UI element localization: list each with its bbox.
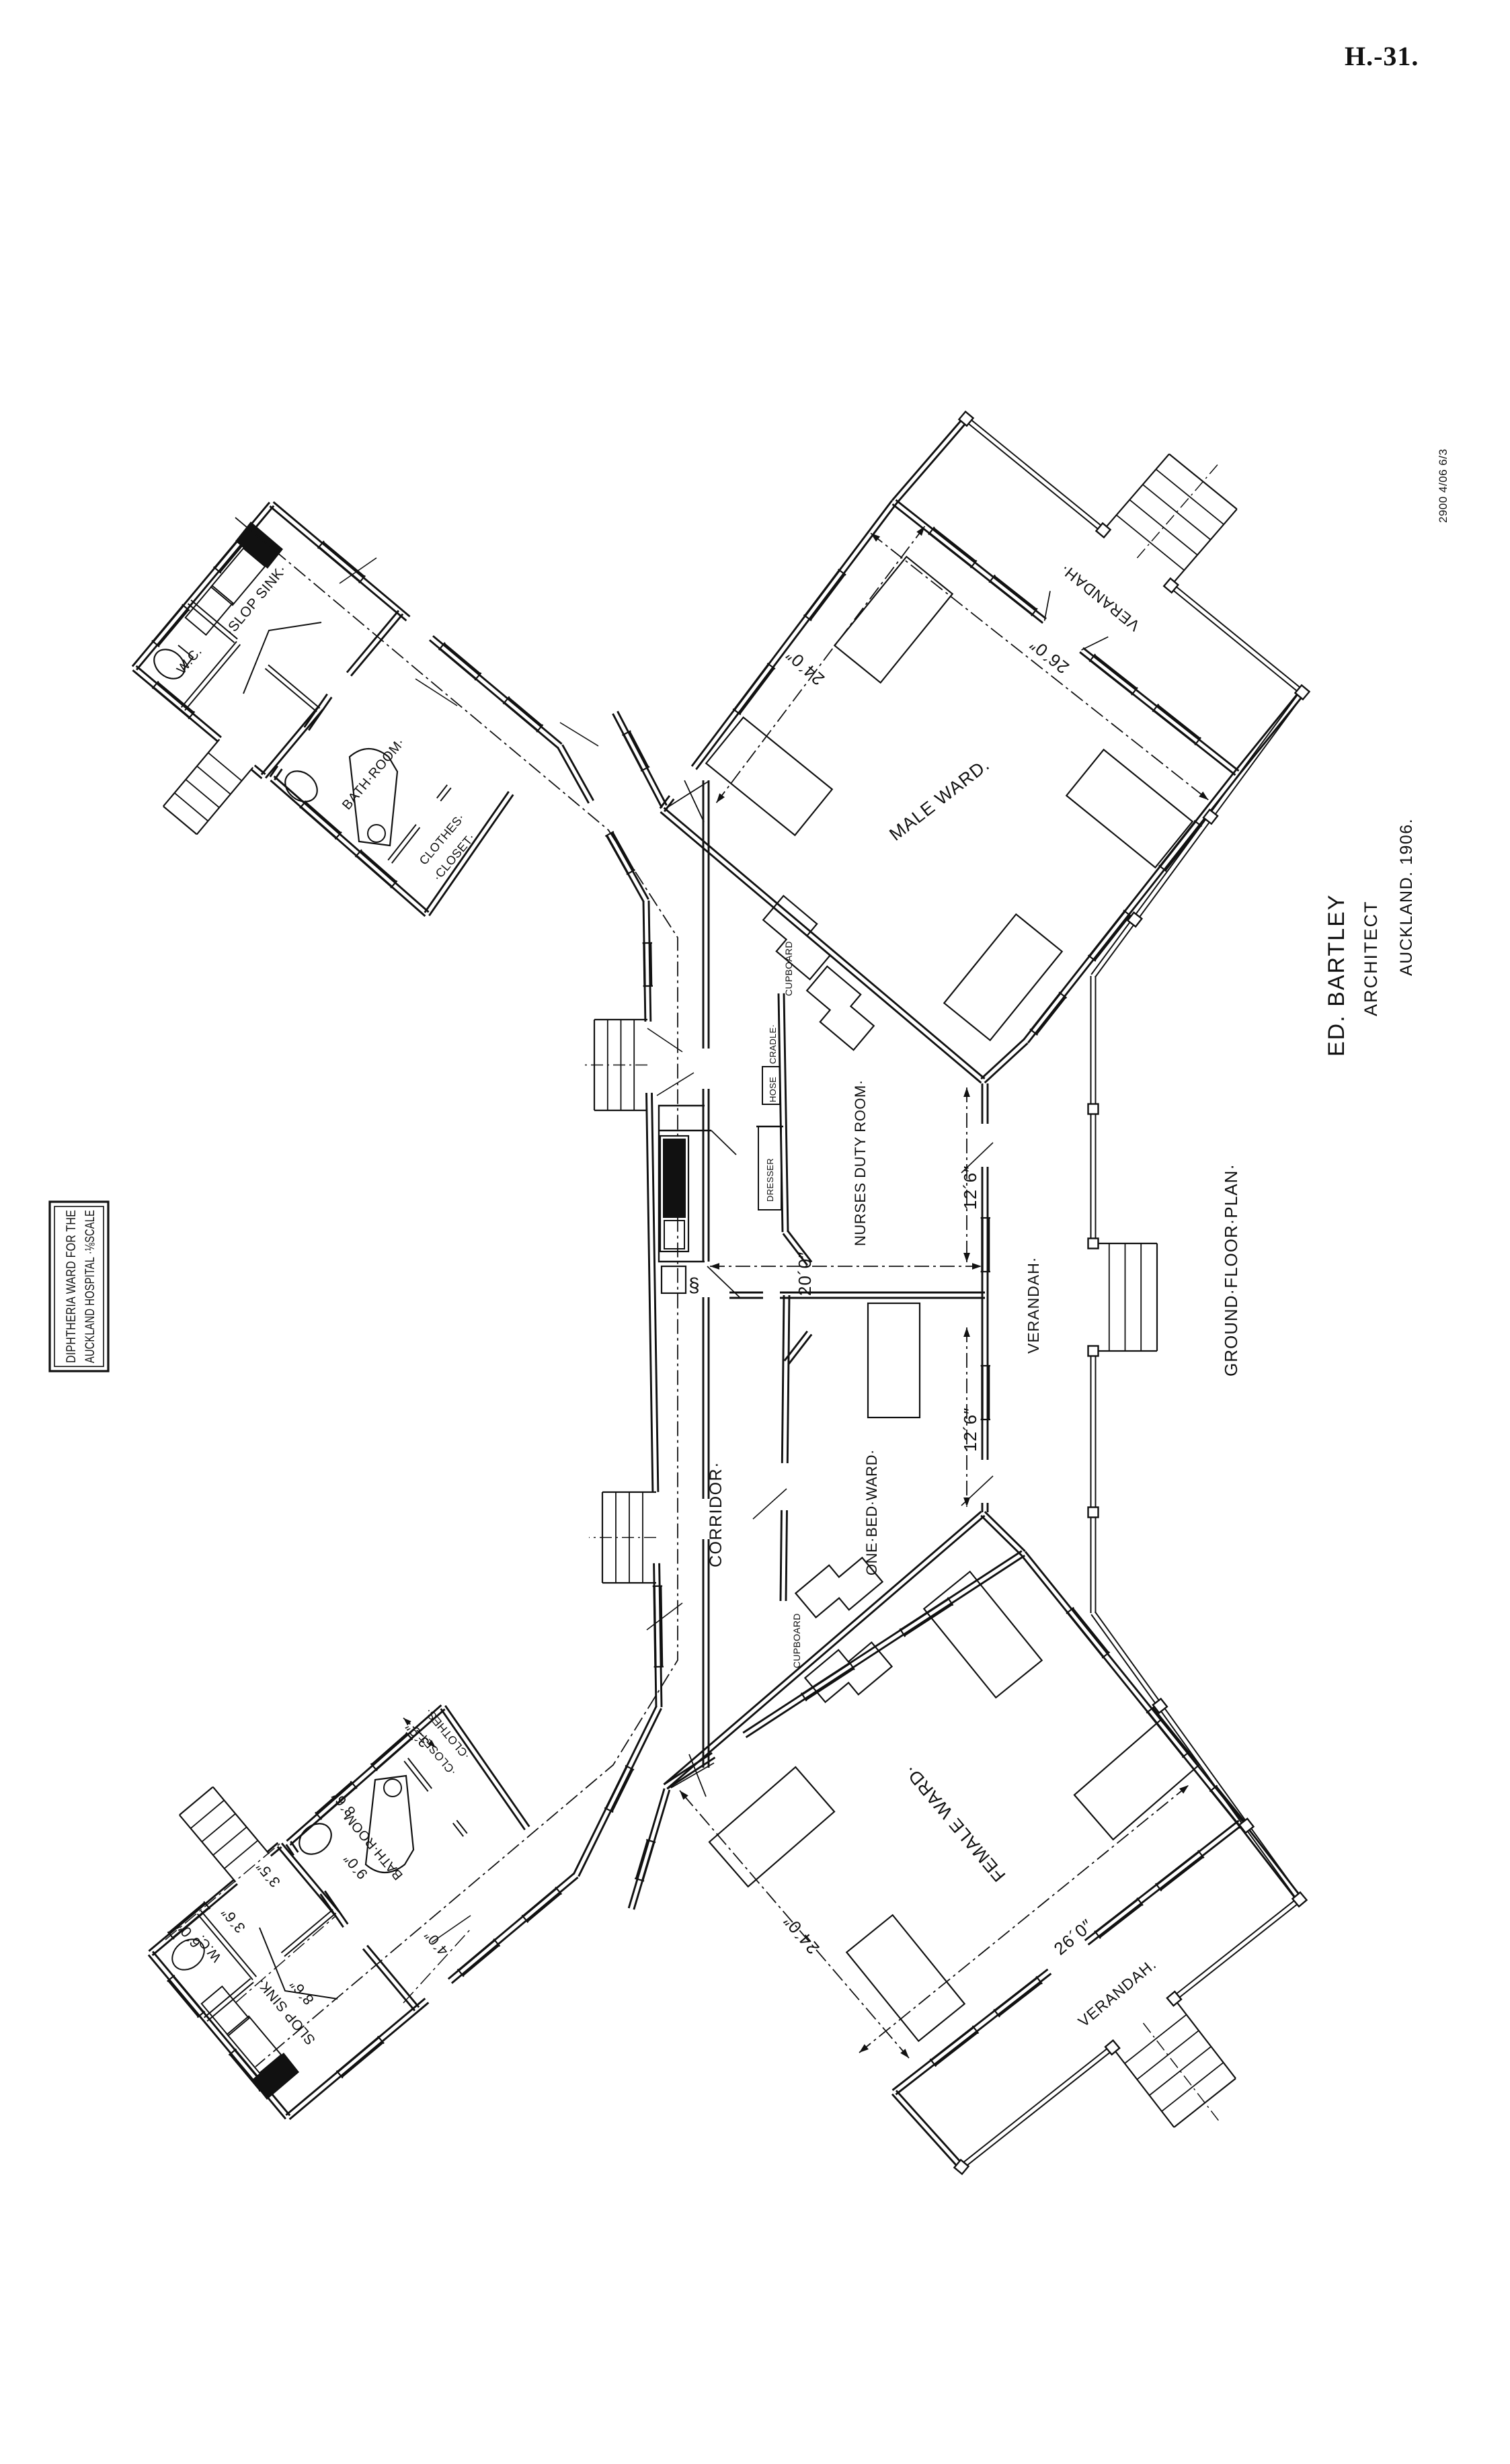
- svg-text:AUCKLAND. 1906.: AUCKLAND. 1906.: [1397, 818, 1416, 976]
- svg-text:ONE·BED·WARD·: ONE·BED·WARD·: [863, 1449, 880, 1575]
- svg-text:NURSES DUTY ROOM·: NURSES DUTY ROOM·: [852, 1079, 869, 1246]
- svg-text:2900 4/06 6/3: 2900 4/06 6/3: [1437, 449, 1449, 523]
- svg-text:DRESSER: DRESSER: [765, 1158, 775, 1202]
- svg-text:§: §: [688, 1274, 700, 1297]
- svg-text:VERANDAH·: VERANDAH·: [1025, 1257, 1042, 1354]
- svg-text:H.-31.: H.-31.: [1345, 41, 1419, 71]
- svg-text:CUPBOARD: CUPBOARD: [783, 941, 794, 996]
- svg-text:ED. BARTLEY: ED. BARTLEY: [1324, 894, 1349, 1057]
- svg-text:AUCKLAND HOSPITAL ·⅛SCALE: AUCKLAND HOSPITAL ·⅛SCALE: [83, 1210, 97, 1363]
- svg-text:ARCHITECT: ARCHITECT: [1361, 901, 1381, 1017]
- svg-text:20´0″: 20´0″: [795, 1251, 815, 1296]
- svg-text:12´6″: 12´6″: [960, 1407, 980, 1452]
- svg-text:CUPBOARD: CUPBOARD: [791, 1613, 802, 1668]
- svg-text:CRADLE·: CRADLE·: [768, 1024, 778, 1064]
- svg-text:DIPHTHERIA WARD FOR THE: DIPHTHERIA WARD FOR THE: [65, 1210, 79, 1363]
- svg-text:HOSE: HOSE: [768, 1077, 778, 1102]
- svg-text:GROUND·FLOOR·PLAN·: GROUND·FLOOR·PLAN·: [1221, 1163, 1241, 1377]
